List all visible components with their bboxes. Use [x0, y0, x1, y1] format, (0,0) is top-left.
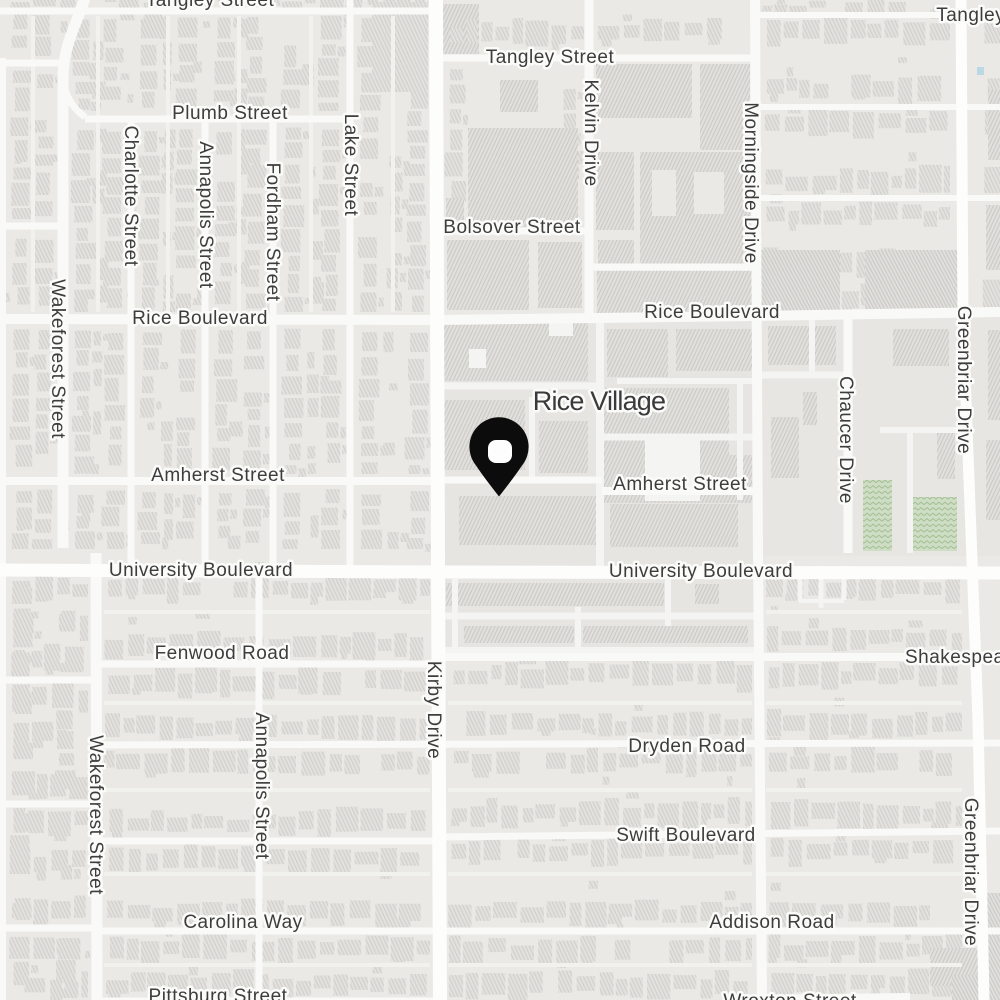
svg-text:Pittsburg Street: Pittsburg Street: [149, 986, 288, 1000]
svg-text:University Boulevard: University Boulevard: [109, 560, 293, 581]
svg-text:Fenwood Road: Fenwood Road: [155, 643, 290, 664]
svg-text:Amherst Street: Amherst Street: [613, 474, 747, 495]
svg-text:Chaucer Drive: Chaucer Drive: [835, 376, 856, 504]
svg-text:Tangley Street: Tangley Street: [146, 0, 275, 11]
svg-text:Fordham Street: Fordham Street: [262, 163, 283, 302]
svg-text:Shakespeare Street: Shakespeare Street: [905, 647, 1000, 668]
svg-text:Dryden Road: Dryden Road: [628, 736, 745, 757]
svg-text:Carolina Way: Carolina Way: [183, 912, 302, 933]
svg-text:Annapolis Street: Annapolis Street: [251, 712, 272, 860]
svg-text:Greenbriar Drive: Greenbriar Drive: [953, 306, 974, 454]
svg-text:Charlotte Street: Charlotte Street: [120, 125, 141, 266]
svg-text:Kirby Drive: Kirby Drive: [423, 661, 444, 759]
svg-text:Rice Boulevard: Rice Boulevard: [132, 308, 268, 329]
svg-text:Lake Street: Lake Street: [340, 114, 361, 217]
svg-text:Amherst Street: Amherst Street: [151, 465, 285, 486]
svg-text:Annapolis Street: Annapolis Street: [195, 141, 216, 289]
svg-text:Swift Boulevard: Swift Boulevard: [616, 825, 756, 846]
svg-text:Wakeforest Street: Wakeforest Street: [47, 279, 68, 439]
svg-text:Morningside Drive: Morningside Drive: [740, 102, 761, 264]
svg-text:Rice Village: Rice Village: [533, 386, 665, 416]
svg-text:Rice Boulevard: Rice Boulevard: [644, 302, 780, 323]
svg-text:University Boulevard: University Boulevard: [609, 561, 793, 582]
svg-text:Wroxton Street: Wroxton Street: [723, 991, 857, 1000]
svg-text:Bolsover Street: Bolsover Street: [443, 217, 581, 238]
svg-text:Wakeforest Street: Wakeforest Street: [85, 735, 106, 895]
svg-text:Tangley Stre: Tangley Stre: [936, 5, 1000, 26]
svg-text:Tangley Street: Tangley Street: [486, 47, 615, 68]
svg-text:Kelvin Drive: Kelvin Drive: [580, 79, 601, 186]
svg-text:Plumb Street: Plumb Street: [172, 103, 288, 124]
svg-text:Addison Road: Addison Road: [709, 912, 834, 933]
svg-text:Greenbriar Drive: Greenbriar Drive: [960, 798, 981, 946]
